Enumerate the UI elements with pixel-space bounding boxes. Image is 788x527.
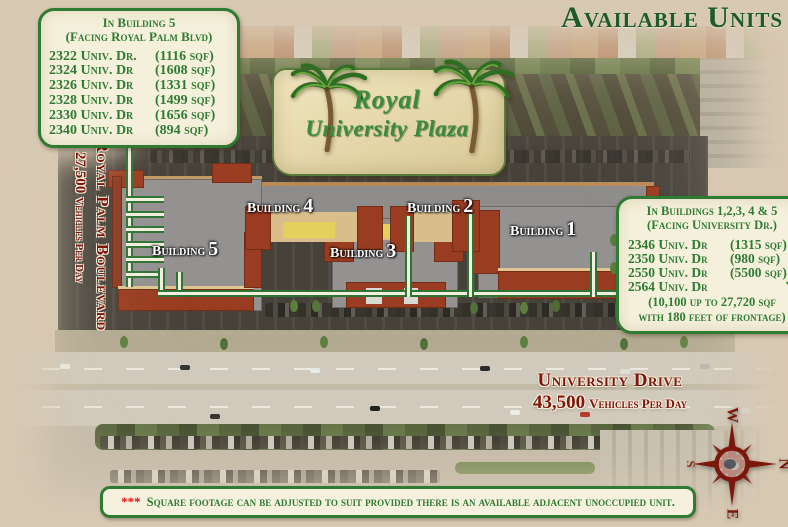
footnote-text: Square footage can be adjusted to suit p…: [147, 495, 675, 510]
plaza-logo-text: Royal University Plaza: [272, 84, 502, 143]
panel-title-line2: (Facing University Dr.): [628, 219, 788, 233]
unit-address: 2330 Univ. Dr: [49, 109, 155, 124]
building-5-label: Building5: [152, 238, 218, 261]
unit-address: 2550 Univ. Dr: [628, 266, 730, 280]
royal-palm-traffic-label: 27,500 Vehicles Per Day: [69, 152, 89, 330]
unit-size: (894 sqf): [155, 124, 229, 139]
unit-row: 2350 Univ. Dr(980 sqf): [628, 252, 788, 266]
unit-row: 2322 Univ. Dr.(1116 sqf): [49, 50, 229, 65]
leader-line: [590, 252, 597, 297]
unit-row: 2326 Univ. Dr(1331 sqf): [49, 79, 229, 94]
page-title: Available Units: [561, 1, 783, 35]
unit-address: 2326 Univ. Dr: [49, 79, 155, 94]
unit-address: 2564 Univ. Dr: [628, 280, 784, 295]
footnote-asterisks: ***: [121, 494, 141, 510]
roof-accent: [212, 163, 252, 183]
compass-rose: W N E S: [687, 406, 788, 522]
university-dr-units-panel: In Buildings 1,2,3, 4 & 5 (Facing Univer…: [616, 196, 788, 334]
leader-tick: [126, 226, 164, 233]
logo-line2: University Plaza: [272, 115, 502, 143]
unit-row: 2564 Univ. Dr↘: [628, 280, 788, 295]
unit-size: (1656 sqf): [155, 109, 229, 124]
building5-units-panel: In Building 5 (Facing Royal Palm Blvd) 2…: [38, 8, 240, 148]
site-plan-flyer: Building4 Building2 Building5 Building3 …: [0, 0, 788, 527]
unit-row: 2340 Univ. Dr(894 sqf): [49, 124, 229, 139]
grass-median: [455, 462, 595, 474]
arrow-down-right-icon: ↘: [784, 280, 788, 295]
panel-title-line1: In Buildings 1,2,3, 4 & 5: [628, 205, 788, 219]
unit-address: 2346 Univ. Dr: [628, 238, 730, 252]
leader-line: [467, 214, 474, 297]
leader-line: [405, 216, 412, 297]
compass-east: E: [724, 509, 741, 520]
unit-size: (1499 sqf): [155, 94, 229, 109]
compass-north: N: [776, 458, 788, 470]
unit-size: (1315 sqf): [730, 238, 788, 252]
unit-address: 2328 Univ. Dr: [49, 94, 155, 109]
frontage-note-line2: with 180 feet of frontage): [628, 310, 788, 324]
roof-accent: [112, 176, 122, 288]
unit-size: (980 sqf): [730, 252, 788, 266]
unit-address: 2324 Univ. Dr: [49, 64, 155, 79]
unit-list: 2346 Univ. Dr(1315 sqf) 2350 Univ. Dr(98…: [628, 238, 788, 296]
aerial-right-lot: [700, 58, 788, 168]
unit-list: 2322 Univ. Dr.(1116 sqf) 2324 Univ. Dr(1…: [49, 50, 229, 139]
frontage-note-line1: (10,100 up to 27,720 sqf: [628, 295, 788, 309]
unit-row: 2328 Univ. Dr(1499 sqf): [49, 94, 229, 109]
road-name: University Drive: [470, 370, 750, 392]
unit-size: (1331 sqf): [155, 79, 229, 94]
building-3-label: Building3: [330, 240, 396, 263]
compass-south: S: [687, 460, 699, 467]
panel-title-line2: (Facing Royal Palm Blvd): [49, 30, 229, 44]
unit-address: 2322 Univ. Dr.: [49, 50, 155, 65]
leader-line-frontage: [158, 290, 620, 297]
unit-size: (1116 sqf): [155, 50, 229, 65]
unit-address: 2340 Univ. Dr: [49, 124, 155, 139]
unit-size: (5500 sqf): [730, 266, 788, 280]
unit-address: 2350 Univ. Dr: [628, 252, 730, 266]
compass-west: W: [724, 407, 741, 423]
unit-size: (1608 sqf): [155, 64, 229, 79]
parked-cars-row: [110, 470, 440, 483]
unit-row: 2324 Univ. Dr(1608 sqf): [49, 64, 229, 79]
royal-palm-blvd-label: Royal Palm Boulevard: [88, 140, 112, 335]
unit-row: 2550 Univ. Dr(5500 sqf): [628, 266, 788, 280]
building-2-label: Building2: [407, 195, 473, 218]
awning-yellow: [283, 222, 335, 238]
logo-line1: Royal: [272, 84, 502, 115]
traffic-dots: [60, 364, 70, 369]
building-4-label: Building4: [247, 195, 313, 218]
unit-row: 2346 Univ. Dr(1315 sqf): [628, 238, 788, 252]
leader-tick: [126, 211, 164, 218]
leader-tick: [126, 196, 164, 203]
building-1-label: Building1: [510, 218, 576, 241]
unit-row: 2330 Univ. Dr(1656 sqf): [49, 109, 229, 124]
shrub-dots: [290, 300, 298, 312]
footnote-banner: *** Square footage can be adjusted to su…: [100, 486, 696, 518]
panel-title-line1: In Building 5: [49, 16, 229, 30]
